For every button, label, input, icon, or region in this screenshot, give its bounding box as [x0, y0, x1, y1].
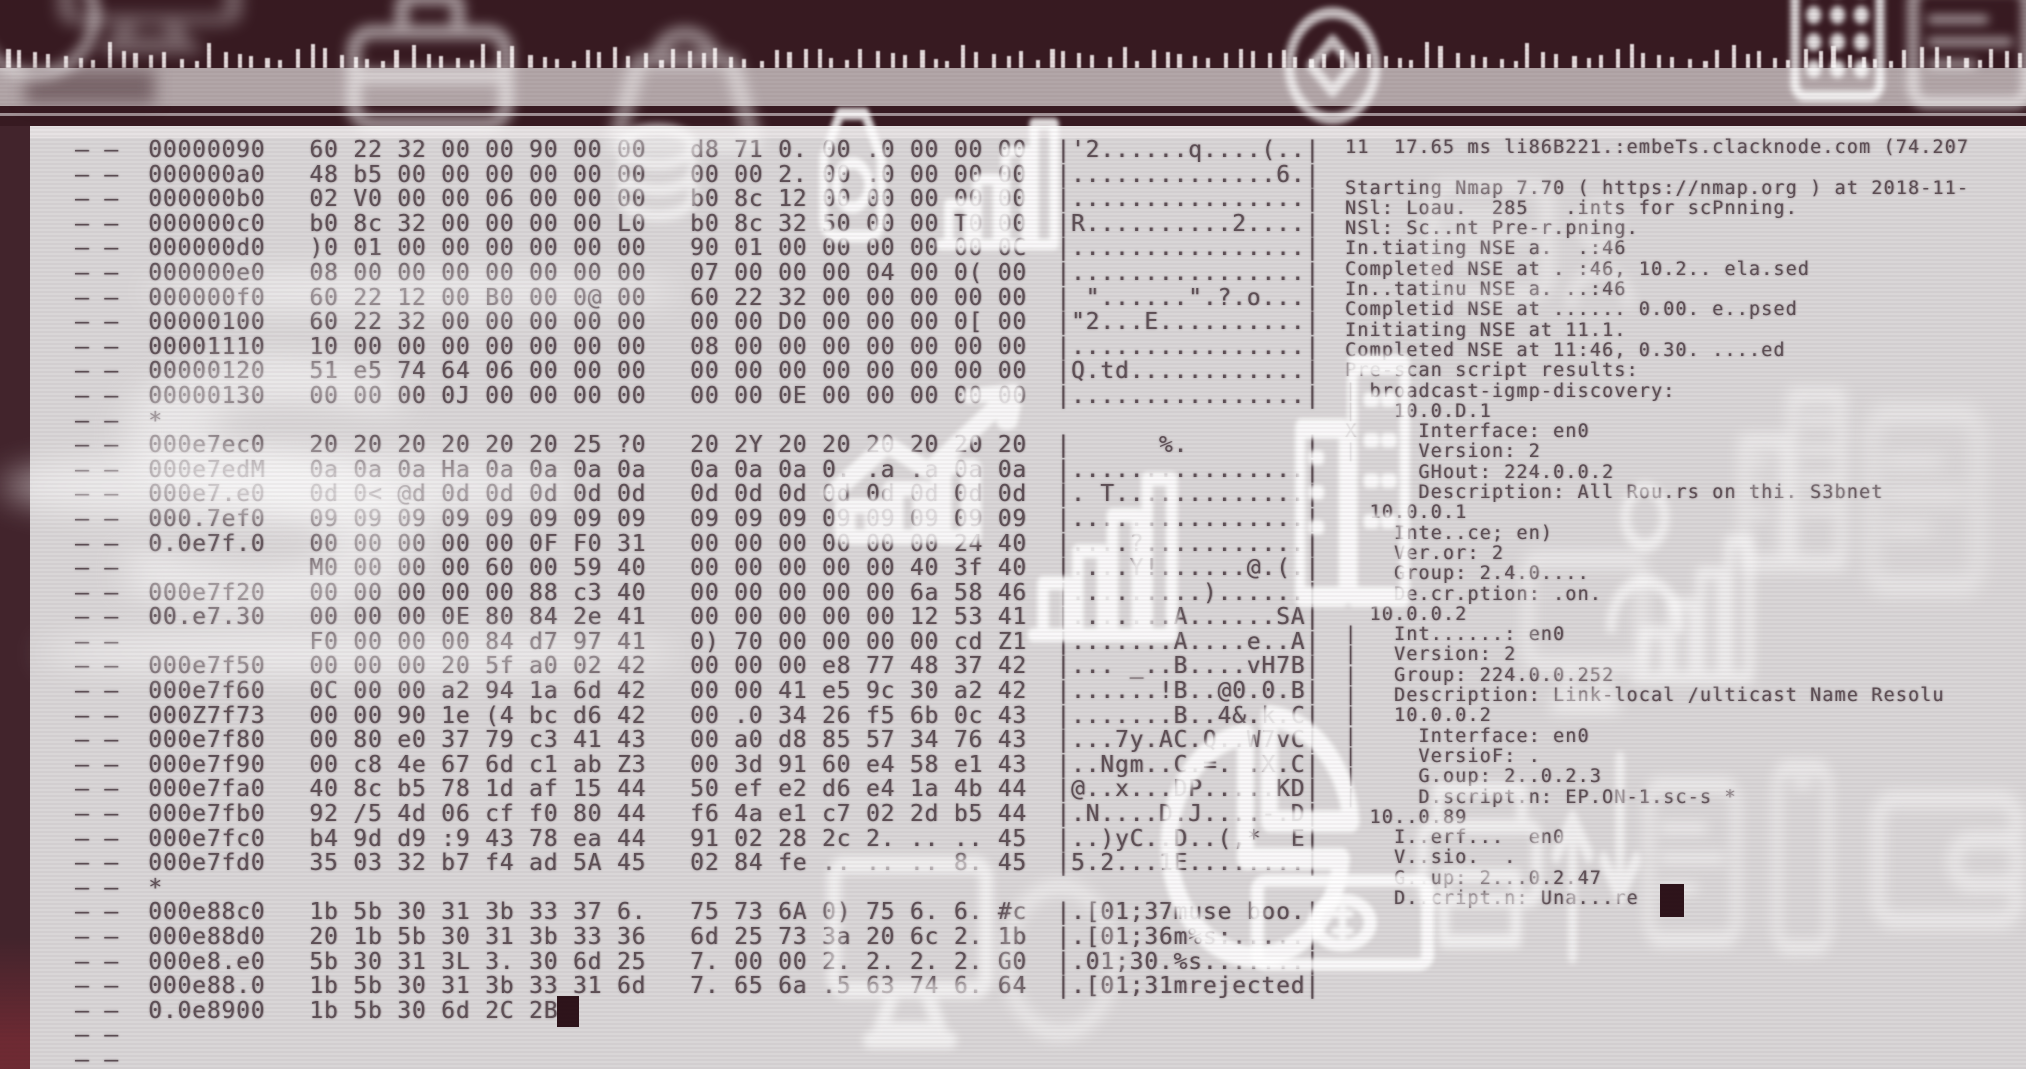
- ruler-tick: [1438, 46, 1443, 68]
- ruler-tick: [180, 59, 184, 68]
- ruler-tick: [1757, 51, 1761, 68]
- ruler-tick: [1703, 61, 1708, 68]
- ruler-tick: [1947, 56, 1951, 68]
- ruler-tick: [354, 57, 358, 68]
- ruler-tick: [1572, 56, 1577, 68]
- ruler-tick: [17, 50, 21, 68]
- band-smudge: [25, 70, 155, 104]
- ruler-tick: [1152, 50, 1156, 68]
- ruler-tick: [1500, 59, 1504, 68]
- ruler-tick: [742, 59, 746, 68]
- ruler-tick: [278, 60, 282, 68]
- ruler-tick: [934, 59, 938, 68]
- ruler-tick: [903, 55, 907, 68]
- ruler-tick: [381, 61, 385, 68]
- ruler-tick: [992, 54, 996, 68]
- ruler-tick: [1471, 55, 1475, 68]
- ruler-tick: [1715, 50, 1719, 68]
- ruler-tick: [1425, 42, 1429, 68]
- ruler-tick: [497, 51, 501, 68]
- hexdump-output: — — 00000090 60 22 32 00 00 90 00 00 d8 …: [75, 138, 1320, 1069]
- ruler-tick: [6, 49, 11, 68]
- ruler-tick: [729, 57, 733, 68]
- ruler-tick: [1889, 61, 1893, 68]
- ruler-tick: [470, 60, 474, 68]
- ruler-tick: [829, 58, 833, 68]
- ruler-tick: [108, 42, 112, 68]
- ruler-tick: [311, 44, 315, 68]
- timeline-ruler: [0, 0, 2026, 68]
- ruler-tick: [1616, 49, 1620, 68]
- ruler-tick: [1732, 45, 1736, 68]
- ruler-tick: [207, 43, 211, 68]
- ruler-tick: [1641, 53, 1645, 68]
- ruler-tick: [365, 59, 369, 68]
- ruler-tick: [1831, 46, 1836, 68]
- upper-band: [0, 68, 2026, 106]
- left-edge-strip: [0, 126, 30, 1069]
- ruler-tick: [1587, 58, 1591, 68]
- ruler-tick: [891, 53, 895, 68]
- ruler-tick: [1978, 60, 1982, 68]
- ruler-tick: [555, 59, 559, 68]
- ruler-tick: [427, 54, 431, 68]
- ruler-tick: [2018, 53, 2022, 68]
- ruler-tick: [340, 55, 344, 68]
- ruler-tick: [1384, 56, 1388, 68]
- video-frame: — — 00000090 60 22 32 00 00 90 00 00 d8 …: [0, 0, 2026, 1069]
- ruler-tick: [688, 51, 692, 68]
- ruler-tick: [1193, 56, 1197, 68]
- ruler-tick: [702, 53, 706, 68]
- ruler-tick: [1819, 51, 1823, 68]
- ruler-tick: [1007, 56, 1011, 68]
- ruler-tick: [33, 52, 37, 68]
- ruler-tick: [876, 51, 880, 68]
- ruler-tick: [195, 61, 199, 68]
- ruler-tick: [238, 54, 242, 68]
- ruler-tick: [149, 55, 153, 68]
- ruler-tick: [858, 49, 862, 68]
- ruler-tick: [1862, 57, 1866, 68]
- ruler-tick: [1902, 50, 1906, 68]
- nmap-output: 11 17.65 ms li86B221.:embeTs.clacknode.c…: [1345, 138, 1969, 909]
- ruler-tick: [1541, 52, 1545, 68]
- ruler-tick: [46, 54, 50, 68]
- ruler-tick: [1688, 59, 1692, 68]
- ruler-tick: [265, 58, 270, 68]
- ruler-tick: [1239, 49, 1243, 68]
- ruler-tick: [597, 52, 601, 68]
- ruler-tick: [775, 50, 779, 68]
- hexdump-cursor: [557, 996, 579, 1027]
- ruler-tick: [1206, 58, 1210, 68]
- ruler-tick: [1848, 55, 1852, 68]
- ruler-tick: [481, 44, 485, 68]
- ruler-tick: [586, 50, 590, 68]
- ruler-tick: [1322, 54, 1326, 68]
- ruler-tick: [613, 47, 617, 68]
- ruler-tick: [1108, 57, 1112, 68]
- ruler-tick: [1355, 52, 1359, 68]
- ruler-tick: [1920, 47, 1924, 68]
- ruler-tick: [1036, 60, 1040, 68]
- ruler-tick: [1773, 58, 1777, 68]
- ruler-tick: [1514, 61, 1518, 68]
- ruler-tick: [528, 55, 533, 68]
- ruler-tick: [510, 46, 514, 68]
- ruler-tick: [1989, 49, 1993, 68]
- ruler-tick: [1293, 57, 1297, 68]
- ruler-tick: [1077, 53, 1081, 68]
- ruler-tick: [713, 48, 717, 68]
- terminal-cursor: [1660, 884, 1684, 917]
- ruler-tick: [1670, 57, 1674, 68]
- ruler-tick: [1935, 47, 1939, 68]
- ruler-tick: [64, 56, 68, 68]
- ruler-tick: [572, 61, 576, 68]
- separator-band: [0, 106, 2026, 126]
- ruler-tick: [1309, 59, 1314, 68]
- ruler-tick: [1804, 49, 1808, 68]
- ruler-tick: [659, 60, 664, 68]
- ruler-tick: [1135, 61, 1139, 68]
- ruler-tick: [818, 49, 822, 68]
- ruler-tick: [1599, 55, 1603, 68]
- ruler-tick: [1525, 43, 1529, 68]
- ruler-tick: [1340, 50, 1344, 68]
- ruler-tick: [945, 61, 949, 68]
- ruler-tick: [249, 56, 253, 68]
- ruler-tick: [1456, 53, 1460, 68]
- ruler-tick: [394, 50, 399, 68]
- ruler-tick: [1409, 60, 1413, 68]
- ruler-tick: [1251, 51, 1255, 68]
- ruler-tick: [79, 58, 83, 68]
- ruler-tick: [122, 51, 126, 68]
- ruler-tick: [1019, 51, 1023, 68]
- ruler-tick: [162, 52, 166, 68]
- ruler-tick: [1224, 53, 1228, 68]
- ruler-tick: [787, 52, 792, 68]
- ruler-tick: [1746, 54, 1750, 68]
- ruler-tick: [845, 60, 849, 68]
- ruler-tick: [760, 61, 764, 68]
- ruler-tick: [133, 53, 138, 68]
- ruler-tick: [1268, 53, 1272, 68]
- ruler-tick: [671, 49, 675, 68]
- ruler-tick: [439, 56, 443, 68]
- ruler-tick: [1630, 44, 1634, 68]
- ruler-tick: [1367, 54, 1371, 68]
- ruler-tick: [1123, 47, 1127, 68]
- ruler-tick: [626, 56, 630, 68]
- ruler-tick: [1166, 52, 1170, 68]
- separator-line: [0, 113, 2026, 116]
- ruler-tick: [1964, 58, 1969, 68]
- ruler-tick: [412, 45, 416, 68]
- ruler-tick: [1398, 58, 1402, 68]
- ruler-tick: [1177, 54, 1182, 68]
- ruler-tick: [1090, 55, 1094, 68]
- ruler-tick: [1873, 59, 1877, 68]
- ruler-tick: [296, 49, 300, 68]
- ruler-tick: [644, 53, 648, 68]
- ruler-tick: [456, 58, 460, 68]
- ruler-tick: [1554, 54, 1558, 68]
- ruler-tick: [974, 52, 978, 68]
- ruler-tick: [1786, 60, 1790, 68]
- ruler-tick: [804, 49, 808, 68]
- top-band: [0, 0, 2026, 68]
- ruler-tick: [543, 57, 547, 68]
- ruler-tick: [91, 60, 95, 68]
- ruler-tick: [1483, 57, 1487, 68]
- ruler-tick: [1050, 49, 1055, 68]
- ruler-tick: [323, 48, 327, 68]
- ruler-tick: [2005, 51, 2009, 68]
- ruler-tick: [1061, 51, 1065, 68]
- ruler-tick: [1657, 55, 1661, 68]
- ruler-tick: [920, 50, 925, 68]
- ruler-tick: [961, 45, 965, 68]
- ruler-tick: [224, 52, 228, 68]
- ruler-tick: [1282, 50, 1286, 68]
